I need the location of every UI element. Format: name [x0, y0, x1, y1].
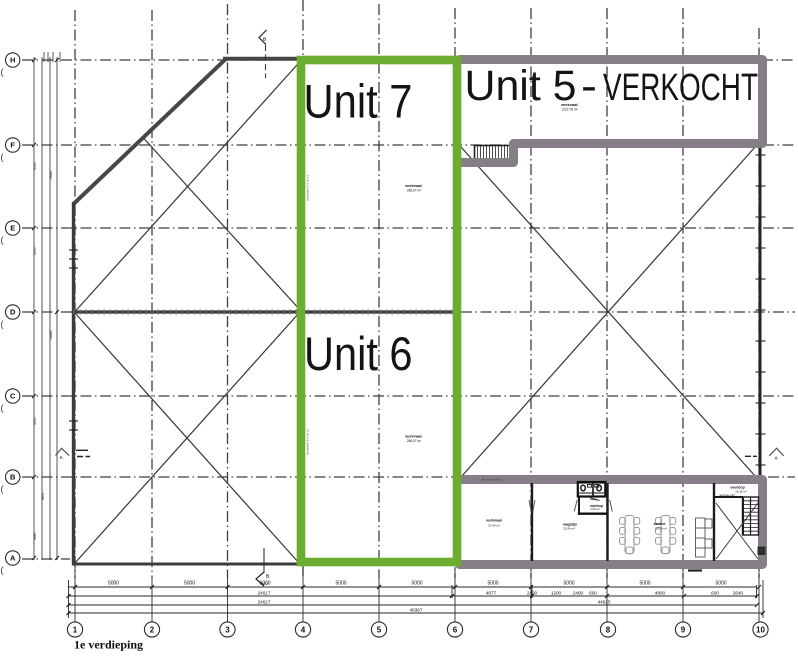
svg-text:600: 600 [589, 591, 597, 596]
svg-text:bk vloer 3.85+ p: bk vloer 3.85+ p [482, 478, 502, 482]
svg-text:bouwdeel 4-6 as 13: bouwdeel 4-6 as 13 [306, 174, 310, 201]
svg-text:kantine: kantine [654, 522, 666, 526]
svg-text:9: 9 [681, 625, 686, 634]
svg-text:5000: 5000 [33, 417, 37, 425]
svg-text:(: ( [1, 67, 4, 77]
svg-text:(: ( [1, 152, 4, 162]
svg-text:B: B [10, 473, 16, 482]
svg-text:1,00 m²: 1,00 m² [590, 507, 600, 511]
svg-text:100: 100 [261, 581, 268, 586]
svg-text:5000: 5000 [335, 581, 346, 587]
svg-text:5000: 5000 [33, 247, 37, 255]
svg-text:2: 2 [150, 625, 155, 634]
svg-text:F: F [10, 141, 15, 150]
svg-text:7: 7 [529, 625, 534, 634]
svg-text:-: - [581, 62, 597, 110]
svg-text:2400: 2400 [573, 591, 584, 596]
svg-text:C: C [10, 392, 16, 401]
svg-text:4: 4 [301, 625, 306, 634]
svg-text:2640: 2640 [733, 591, 744, 596]
svg-text:5000: 5000 [715, 581, 726, 587]
svg-text:4900: 4900 [41, 492, 45, 500]
svg-text:H: H [10, 56, 15, 65]
svg-text:5000: 5000 [411, 581, 422, 587]
svg-text:5000: 5000 [33, 162, 37, 170]
svg-text:5000: 5000 [639, 581, 650, 587]
svg-text:werkmaal: werkmaal [560, 103, 577, 107]
svg-text:5000: 5000 [487, 581, 498, 587]
svg-text:2400: 2400 [527, 591, 538, 596]
svg-text:5000: 5000 [184, 581, 195, 587]
svg-text:A: A [10, 554, 16, 563]
svg-text:24617: 24617 [258, 591, 271, 596]
svg-text:werkmaal: werkmaal [485, 519, 502, 523]
svg-text:5: 5 [377, 625, 382, 634]
svg-text:1e verdieping: 1e verdieping [74, 638, 143, 652]
svg-text:3: 3 [225, 625, 230, 634]
svg-text:werkmaal: werkmaal [404, 435, 421, 439]
svg-text:(: ( [1, 484, 4, 494]
svg-text:30,04 m²: 30,04 m² [655, 527, 667, 531]
svg-text:Unit 5: Unit 5 [465, 62, 577, 110]
svg-text:16,36 m²: 16,36 m² [735, 490, 747, 494]
svg-text:aantrede 230: aantrede 230 [719, 493, 735, 497]
svg-text:8: 8 [606, 625, 611, 634]
svg-text:werkmaal: werkmaal [404, 184, 421, 188]
svg-text:14445: 14445 [49, 330, 53, 340]
svg-text:1222,78 m²: 1222,78 m² [561, 108, 577, 112]
svg-text:Unit 6: Unit 6 [304, 327, 413, 380]
svg-text:600: 600 [711, 591, 719, 596]
svg-text:(: ( [1, 565, 4, 575]
svg-text:4800: 4800 [655, 591, 666, 596]
svg-text:4877: 4877 [486, 591, 497, 596]
svg-text:27,04 m²: 27,04 m² [488, 524, 500, 528]
svg-text:1: 1 [73, 625, 78, 634]
svg-text:19640: 19640 [49, 170, 53, 180]
svg-text:VERKOCHT: VERKOCHT [603, 67, 758, 109]
svg-text:Unit 7: Unit 7 [304, 75, 413, 128]
svg-text:22,04 m²: 22,04 m² [563, 527, 575, 531]
svg-text:49367: 49367 [410, 608, 423, 613]
svg-text:(: ( [1, 403, 4, 413]
svg-text:1200: 1200 [551, 591, 562, 596]
svg-text:(: ( [1, 319, 4, 329]
svg-text:266,07 m²: 266,07 m² [407, 439, 421, 443]
svg-text:(: ( [1, 235, 4, 245]
svg-text:44615: 44615 [598, 600, 611, 605]
svg-text:D: D [10, 308, 16, 317]
svg-text:E: E [10, 224, 15, 233]
svg-text:24617: 24617 [258, 600, 271, 605]
svg-text:5000: 5000 [108, 581, 119, 587]
svg-text:266,07 m²: 266,07 m² [407, 188, 421, 192]
svg-text:bouwdeel 4-6 as 13: bouwdeel 4-6 as 13 [306, 428, 310, 455]
svg-text:10: 10 [756, 625, 765, 634]
svg-text:6: 6 [453, 625, 458, 634]
svg-text:5000: 5000 [563, 581, 574, 587]
svg-text:3690: 3690 [33, 532, 37, 540]
